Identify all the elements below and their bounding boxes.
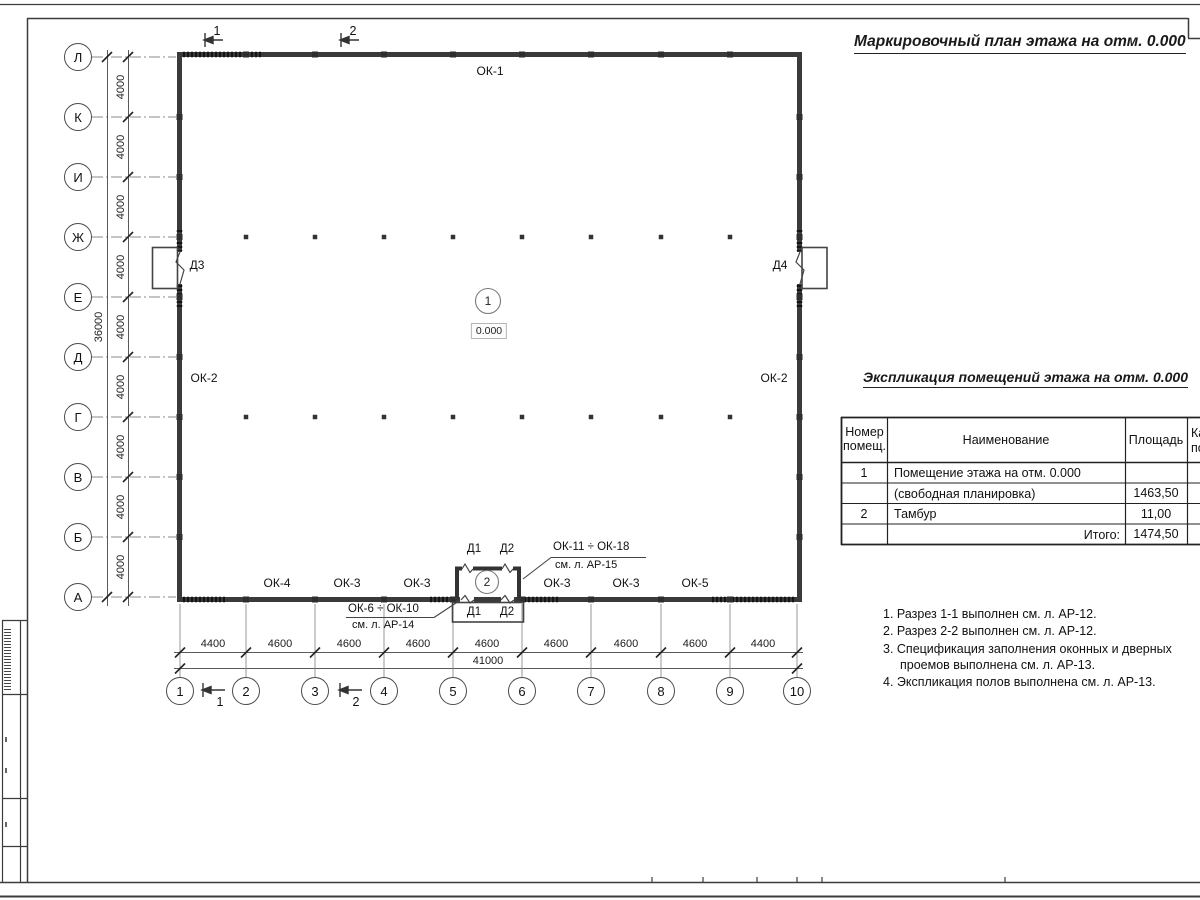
- table-row3-name: Тамбур: [894, 507, 936, 521]
- dim-col-0: 4400: [201, 638, 225, 650]
- axis-col-10: 10: [783, 677, 811, 705]
- axis-col-6: 6: [508, 677, 536, 705]
- axis-col-5: 5: [439, 677, 467, 705]
- dim-col-5: 4600: [544, 638, 568, 650]
- table-total-label: Итого:: [894, 528, 1120, 542]
- section-mark-bottom-1: 1: [217, 695, 224, 709]
- tambour-door-top-d2: Д2: [500, 543, 514, 555]
- dim-row-6: 4000: [115, 435, 127, 459]
- axis-row-Ж: Ж: [64, 223, 92, 251]
- axis-col-2: 2: [232, 677, 260, 705]
- table-row3-area: 11,00: [1141, 507, 1171, 521]
- section-mark-bottom-2: 2: [353, 695, 360, 709]
- window-label-ok1: ОК-1: [477, 64, 504, 78]
- table-row2-name: (свободная планировка): [894, 487, 1035, 501]
- porch-d3: [153, 248, 178, 289]
- axis-row-Б: Б: [64, 523, 92, 551]
- room-2-number: 2: [484, 575, 491, 589]
- leader-ok6-ok10: ОК-6 ÷ ОК-10: [348, 603, 419, 615]
- note-1: 1. Разрез 1-1 выполнен см. л. АР-12.: [883, 606, 1185, 622]
- porch-d4: [802, 248, 827, 289]
- table-row1-name: Помещение этажа на отм. 0.000: [894, 466, 1081, 480]
- room-1-number: 1: [485, 294, 492, 308]
- window-label-bottom-3: ОК-3: [544, 576, 571, 590]
- axis-row-К: К: [64, 103, 92, 131]
- room-1-elevation: 0.000: [471, 323, 507, 339]
- window-label-bottom-5: ОК-5: [682, 576, 709, 590]
- table-header-cut-line1: Ка: [1191, 426, 1200, 440]
- axis-col-9: 9: [716, 677, 744, 705]
- dim-col-1: 4600: [268, 638, 292, 650]
- note-4: 4. Экспликация полов выполнена см. л. АР…: [883, 674, 1185, 690]
- axis-row-Д: Д: [64, 343, 92, 371]
- leader-ok6-sheet: см. л. АР-14: [352, 619, 414, 631]
- dim-col-total: 41000: [473, 655, 504, 667]
- note-3: 3. Спецификация заполнения оконных и две…: [883, 641, 1185, 674]
- table-row1-num: 1: [861, 466, 868, 480]
- plan-title: Маркировочный план этажа на отм. 0.000: [854, 33, 1186, 54]
- door-label-d3: Д3: [190, 258, 205, 272]
- dim-row-0: 4000: [115, 75, 127, 99]
- tambour-door-bottom-d2: Д2: [500, 606, 514, 618]
- axis-col-3: 3: [301, 677, 329, 705]
- table-header-number: Номер помещ.: [842, 425, 887, 453]
- dim-col-4: 4600: [475, 638, 499, 650]
- notes-list: 1. Разрез 1-1 выполнен см. л. АР-12. 2. …: [883, 606, 1185, 691]
- table-header-cut-line2: по: [1191, 441, 1200, 455]
- section-mark-top-2: 2: [350, 24, 357, 38]
- stamp-text-block: [4, 628, 11, 690]
- table-row3-num: 2: [861, 507, 868, 521]
- dim-row-5: 4000: [115, 375, 127, 399]
- dim-col-3: 4600: [406, 638, 430, 650]
- dim-row-8: 4000: [115, 555, 127, 579]
- dim-col-6: 4600: [614, 638, 638, 650]
- dim-col-2: 4600: [337, 638, 361, 650]
- dim-row-7: 4000: [115, 495, 127, 519]
- dim-row-2: 4000: [115, 195, 127, 219]
- table-title: Экспликация помещений этажа на отм. 0.00…: [863, 369, 1188, 388]
- tambour-door-top-d1: Д1: [467, 543, 481, 555]
- axis-col-4: 4: [370, 677, 398, 705]
- table-header-area: Площадь: [1129, 433, 1183, 447]
- window-label-ok2-left: ОК-2: [191, 371, 218, 385]
- note-2: 2. Разрез 2-2 выполнен см. л. АР-12.: [883, 623, 1185, 639]
- axis-col-8: 8: [647, 677, 675, 705]
- dim-row-1: 4000: [115, 135, 127, 159]
- axis-col-7: 7: [577, 677, 605, 705]
- section-mark-top-1: 1: [214, 24, 221, 38]
- axis-row-И: И: [64, 163, 92, 191]
- window-label-bottom-0: ОК-4: [264, 576, 291, 590]
- table-row2-area: 1463,50: [1133, 486, 1178, 500]
- dim-row-total: 36000: [93, 312, 105, 343]
- table-total-value: 1474,50: [1133, 527, 1178, 541]
- axis-col-1: 1: [166, 677, 194, 705]
- window-label-ok2-right: ОК-2: [761, 371, 788, 385]
- axis-row-Л: Л: [64, 43, 92, 71]
- dim-row-4: 4000: [115, 315, 127, 339]
- leader-ok11-ok18: ОК-11 ÷ ОК-18: [553, 541, 629, 553]
- window-label-bottom-1: ОК-3: [334, 576, 361, 590]
- axis-row-Е: Е: [64, 283, 92, 311]
- axis-row-Г: Г: [64, 403, 92, 431]
- dim-col-7: 4600: [683, 638, 707, 650]
- table-header-name: Наименование: [963, 433, 1050, 447]
- drawing-sheet: Маркировочный план этажа на отм. 0.000 Э…: [0, 0, 1200, 900]
- tambour-door-bottom-d1: Д1: [467, 606, 481, 618]
- window-label-bottom-4: ОК-3: [613, 576, 640, 590]
- window-label-bottom-2: ОК-3: [404, 576, 431, 590]
- dim-row-3: 4000: [115, 255, 127, 279]
- plan-linework: [0, 0, 1200, 900]
- door-label-d4: Д4: [773, 258, 788, 272]
- dim-col-8: 4400: [751, 638, 775, 650]
- axis-row-А: А: [64, 583, 92, 611]
- axis-row-В: В: [64, 463, 92, 491]
- leader-ok11-sheet: см. л. АР-15: [555, 559, 617, 571]
